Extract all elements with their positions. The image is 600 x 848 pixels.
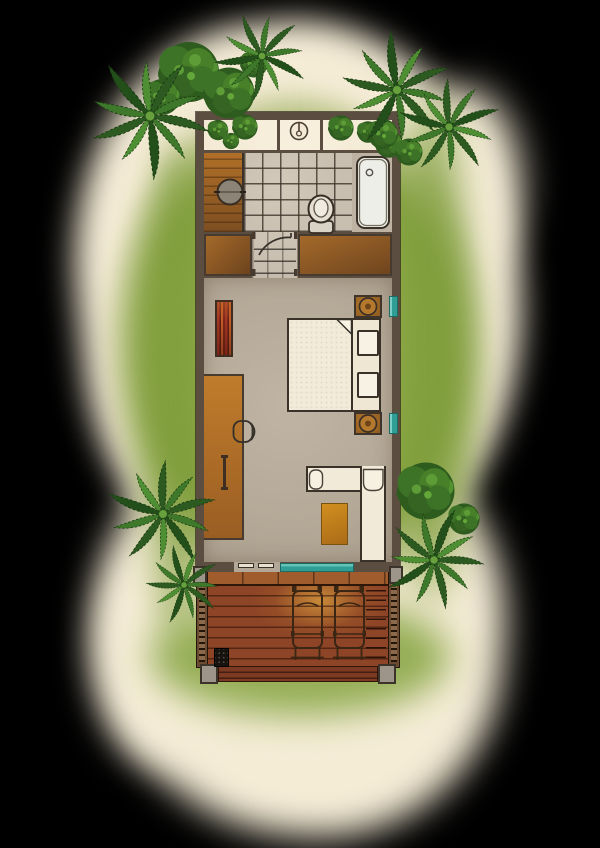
lawn-shade-right — [396, 100, 468, 600]
daybed-chaise — [306, 466, 362, 492]
window-teal-bottom — [389, 413, 398, 434]
wardrobe — [298, 234, 392, 276]
rug — [321, 503, 348, 545]
deck-floor — [208, 586, 388, 668]
stone-post-bottom-right — [378, 664, 396, 684]
shower-garden — [204, 120, 392, 150]
bathroom-floor — [244, 153, 352, 232]
vanity-counter — [204, 153, 244, 232]
window-teal-top — [389, 296, 398, 317]
entry-door-panel-left — [238, 563, 254, 568]
deck-rail-right-slats — [391, 576, 397, 662]
deck-bottom-band — [218, 666, 378, 682]
door-mat — [214, 648, 229, 667]
bed-mattress — [287, 318, 353, 412]
entry-door-panel-right — [258, 563, 274, 568]
pillow-top — [357, 330, 379, 356]
floorplan-scene — [0, 0, 600, 848]
stone-post-top-left — [193, 566, 207, 584]
bedside-table-bottom — [354, 412, 382, 435]
daybed-return — [360, 466, 386, 562]
bathtub — [356, 156, 390, 229]
luggage-rack — [215, 300, 233, 357]
deck-plank-ends-right — [366, 590, 386, 664]
garden-divider-left — [277, 120, 280, 150]
passage-step-lines — [254, 244, 296, 274]
desk-groove — [223, 457, 226, 487]
desk-groove-cap-bottom — [221, 487, 228, 490]
pillow-bottom — [357, 372, 379, 398]
desk-groove-cap-top — [221, 455, 228, 458]
garden-divider-right — [320, 120, 323, 150]
bedside-table-top — [354, 295, 382, 318]
closet — [204, 234, 252, 276]
stone-post-top-right — [389, 566, 403, 584]
deck-rail-left-slats — [199, 576, 205, 662]
sliding-glass-door — [280, 563, 354, 572]
stone-post-bottom-left — [200, 664, 218, 684]
deck-top-band — [208, 572, 388, 586]
